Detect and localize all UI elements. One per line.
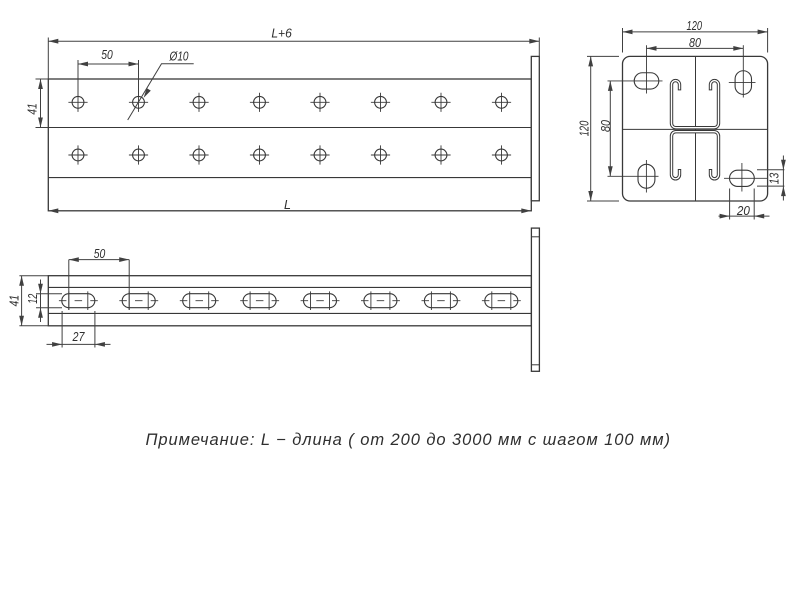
svg-text:41: 41 xyxy=(8,295,22,307)
svg-text:20: 20 xyxy=(736,204,750,218)
svg-text:41: 41 xyxy=(26,103,40,115)
svg-text:80: 80 xyxy=(689,36,701,50)
svg-text:Ø10: Ø10 xyxy=(169,50,189,64)
svg-text:80: 80 xyxy=(599,120,613,132)
svg-text:120: 120 xyxy=(687,19,703,33)
svg-text:120: 120 xyxy=(578,121,592,137)
svg-text:50: 50 xyxy=(101,48,113,62)
svg-text:27: 27 xyxy=(72,330,86,344)
svg-text:13: 13 xyxy=(768,173,782,185)
svg-text:50: 50 xyxy=(94,247,106,261)
svg-text:L: L xyxy=(284,198,291,212)
svg-text:Примечание: L − длина ( от 200: Примечание: L − длина ( от 200 до 3000 м… xyxy=(146,431,671,449)
svg-text:L+6: L+6 xyxy=(271,25,292,40)
svg-text:12: 12 xyxy=(26,294,40,304)
